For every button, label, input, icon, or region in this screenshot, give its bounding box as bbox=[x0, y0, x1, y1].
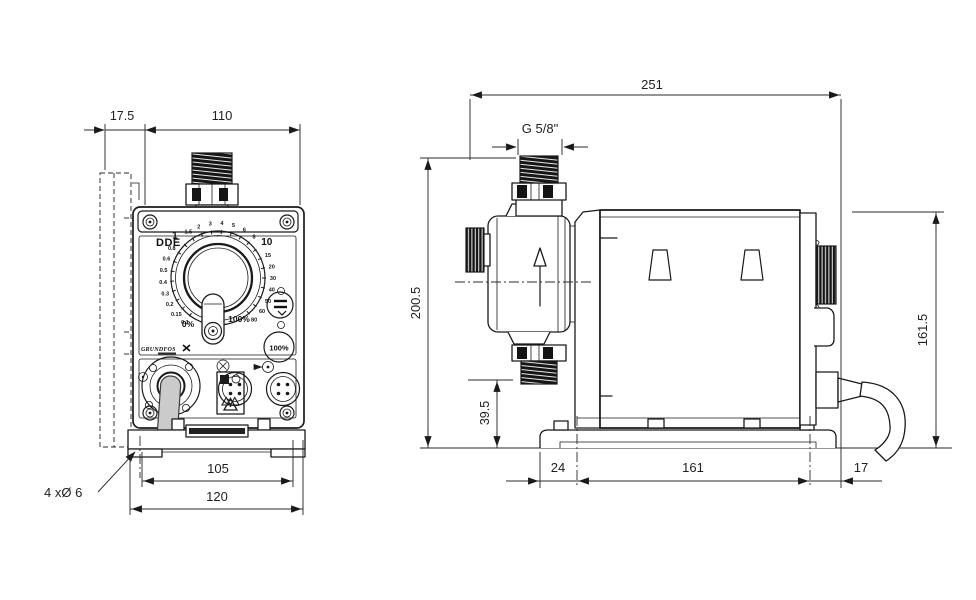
dial-scale-label: 20 bbox=[269, 264, 275, 270]
leader-line bbox=[98, 452, 135, 492]
dim-base-front-offset: 24 bbox=[551, 460, 565, 475]
rear-bracket bbox=[814, 308, 834, 346]
dim-overall-height: 200.5 bbox=[408, 287, 423, 320]
dial-scale-label: 0.3 bbox=[161, 291, 169, 297]
power-cable bbox=[860, 382, 905, 461]
dial-scale-label: 60 bbox=[259, 309, 265, 315]
dial-max-label: 100% bbox=[228, 314, 250, 324]
dim-base-rear-offset: 17 bbox=[854, 460, 868, 475]
dim-width: 110 bbox=[212, 108, 233, 123]
dosing-head-side bbox=[455, 156, 592, 384]
dial-scale-label: 5 bbox=[232, 223, 235, 229]
brand-logo-text: GRUNDFOS bbox=[141, 347, 176, 353]
dial-pointer-handle bbox=[202, 294, 224, 344]
dial-scale-label: 1 bbox=[172, 230, 178, 241]
dial-scale-label: 80 bbox=[251, 318, 257, 324]
thread-icon bbox=[521, 361, 557, 384]
dial-scale-label: 15 bbox=[265, 253, 271, 259]
dial-scale-label: 30 bbox=[270, 276, 276, 282]
dim-base-width: 120 bbox=[206, 489, 228, 504]
dim-hole-spacing: 161 bbox=[682, 460, 704, 475]
dim-thread: G 5/8" bbox=[522, 121, 559, 136]
dim-housing-height: 161.5 bbox=[915, 314, 930, 347]
prime-button-label: 100% bbox=[269, 344, 289, 353]
dial-scale-label: 0.15 bbox=[171, 312, 182, 318]
thread-icon bbox=[520, 156, 558, 183]
dial-scale-label: 2 bbox=[197, 224, 200, 230]
top-connection-front bbox=[186, 153, 238, 211]
dim-valve-height: 39.5 bbox=[478, 401, 492, 425]
dial-scale-label: 0.6 bbox=[163, 257, 171, 263]
adjustment-knob-side bbox=[816, 240, 836, 310]
dial-scale-label: 0.5 bbox=[160, 268, 168, 274]
dial-min-label: 0% bbox=[182, 319, 195, 329]
dial-scale-label: 10 bbox=[261, 237, 273, 248]
thread-icon bbox=[192, 153, 232, 184]
technical-drawing-canvas: DDE 0.10.150.20.30.40.50.60.811.52345681… bbox=[0, 0, 976, 600]
dial-scale-label: 0.8 bbox=[168, 246, 176, 252]
pump-dimensional-drawing: DDE 0.10.150.20.30.40.50.60.811.52345681… bbox=[0, 0, 976, 600]
pump-housing-side bbox=[575, 210, 816, 428]
dial-scale-label: 6 bbox=[243, 228, 246, 234]
dial-scale-label: 0.4 bbox=[159, 280, 168, 286]
front-view: DDE 0.10.150.20.30.40.50.60.811.52345681… bbox=[44, 108, 305, 515]
dim-mounting-holes: 4 xØ 6 bbox=[44, 485, 82, 500]
dial-tick bbox=[171, 271, 175, 272]
dial-scale-label: 8 bbox=[252, 234, 255, 240]
cable-gland bbox=[816, 372, 862, 408]
vent-valve-knob bbox=[466, 228, 484, 272]
dim-hole-span: 105 bbox=[207, 461, 229, 476]
dial-tick bbox=[211, 230, 212, 234]
dial-scale-label: 0.2 bbox=[166, 302, 174, 308]
side-view: 251 G 5/8" 200.5 39.5 161.5 bbox=[408, 77, 952, 488]
dial-scale-label: 3 bbox=[209, 222, 212, 228]
dim-bracket-depth: 17.5 bbox=[110, 109, 134, 123]
dim-overall-length: 251 bbox=[641, 77, 663, 92]
dial-scale-label: 1.5 bbox=[184, 230, 192, 236]
dial-scale-label: 40 bbox=[269, 288, 275, 294]
